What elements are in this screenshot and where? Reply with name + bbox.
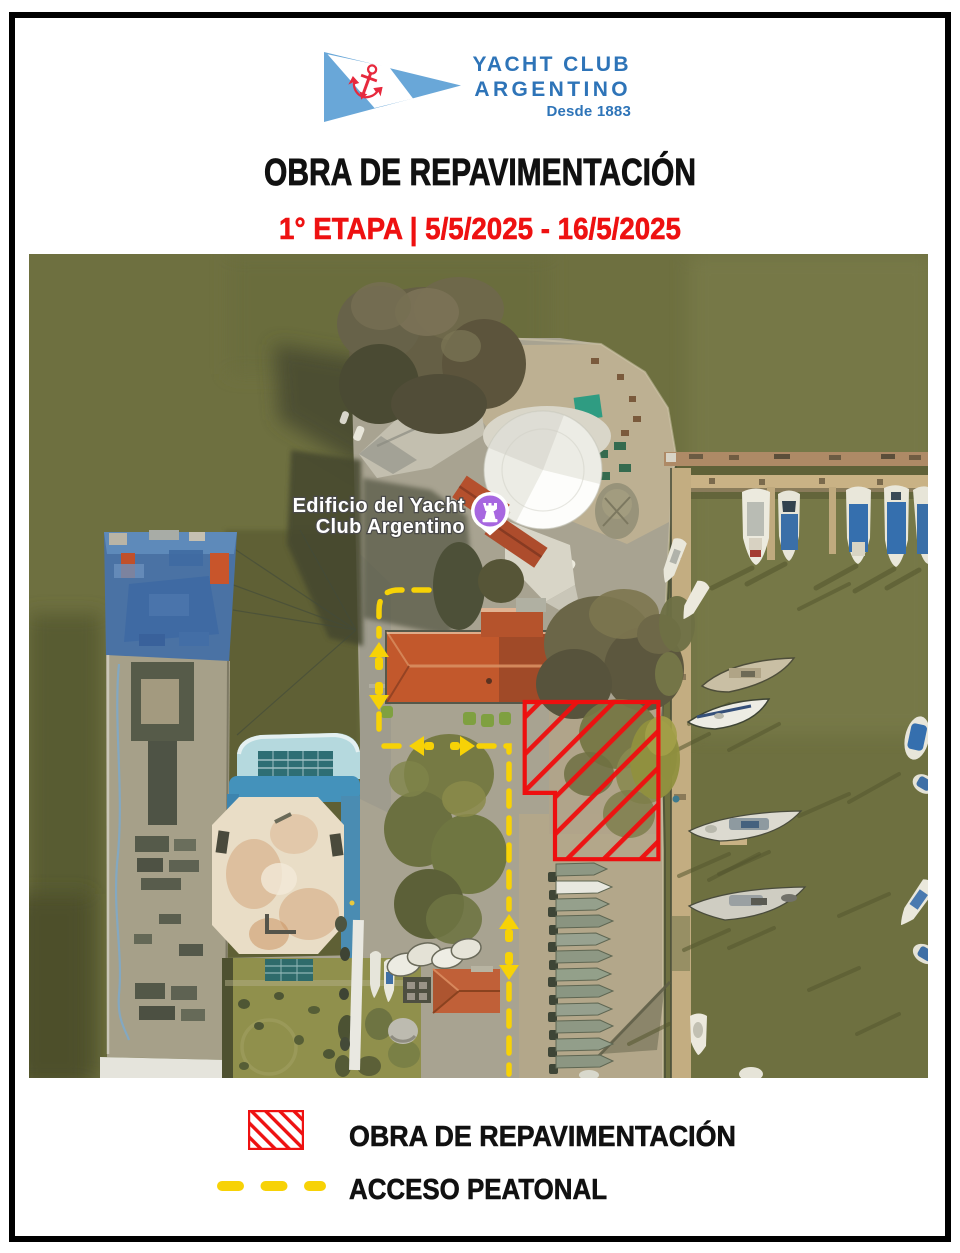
svg-text:Edificio del Yacht: Edificio del Yacht <box>293 495 465 517</box>
svg-text:Club Argentino: Club Argentino <box>316 516 465 538</box>
